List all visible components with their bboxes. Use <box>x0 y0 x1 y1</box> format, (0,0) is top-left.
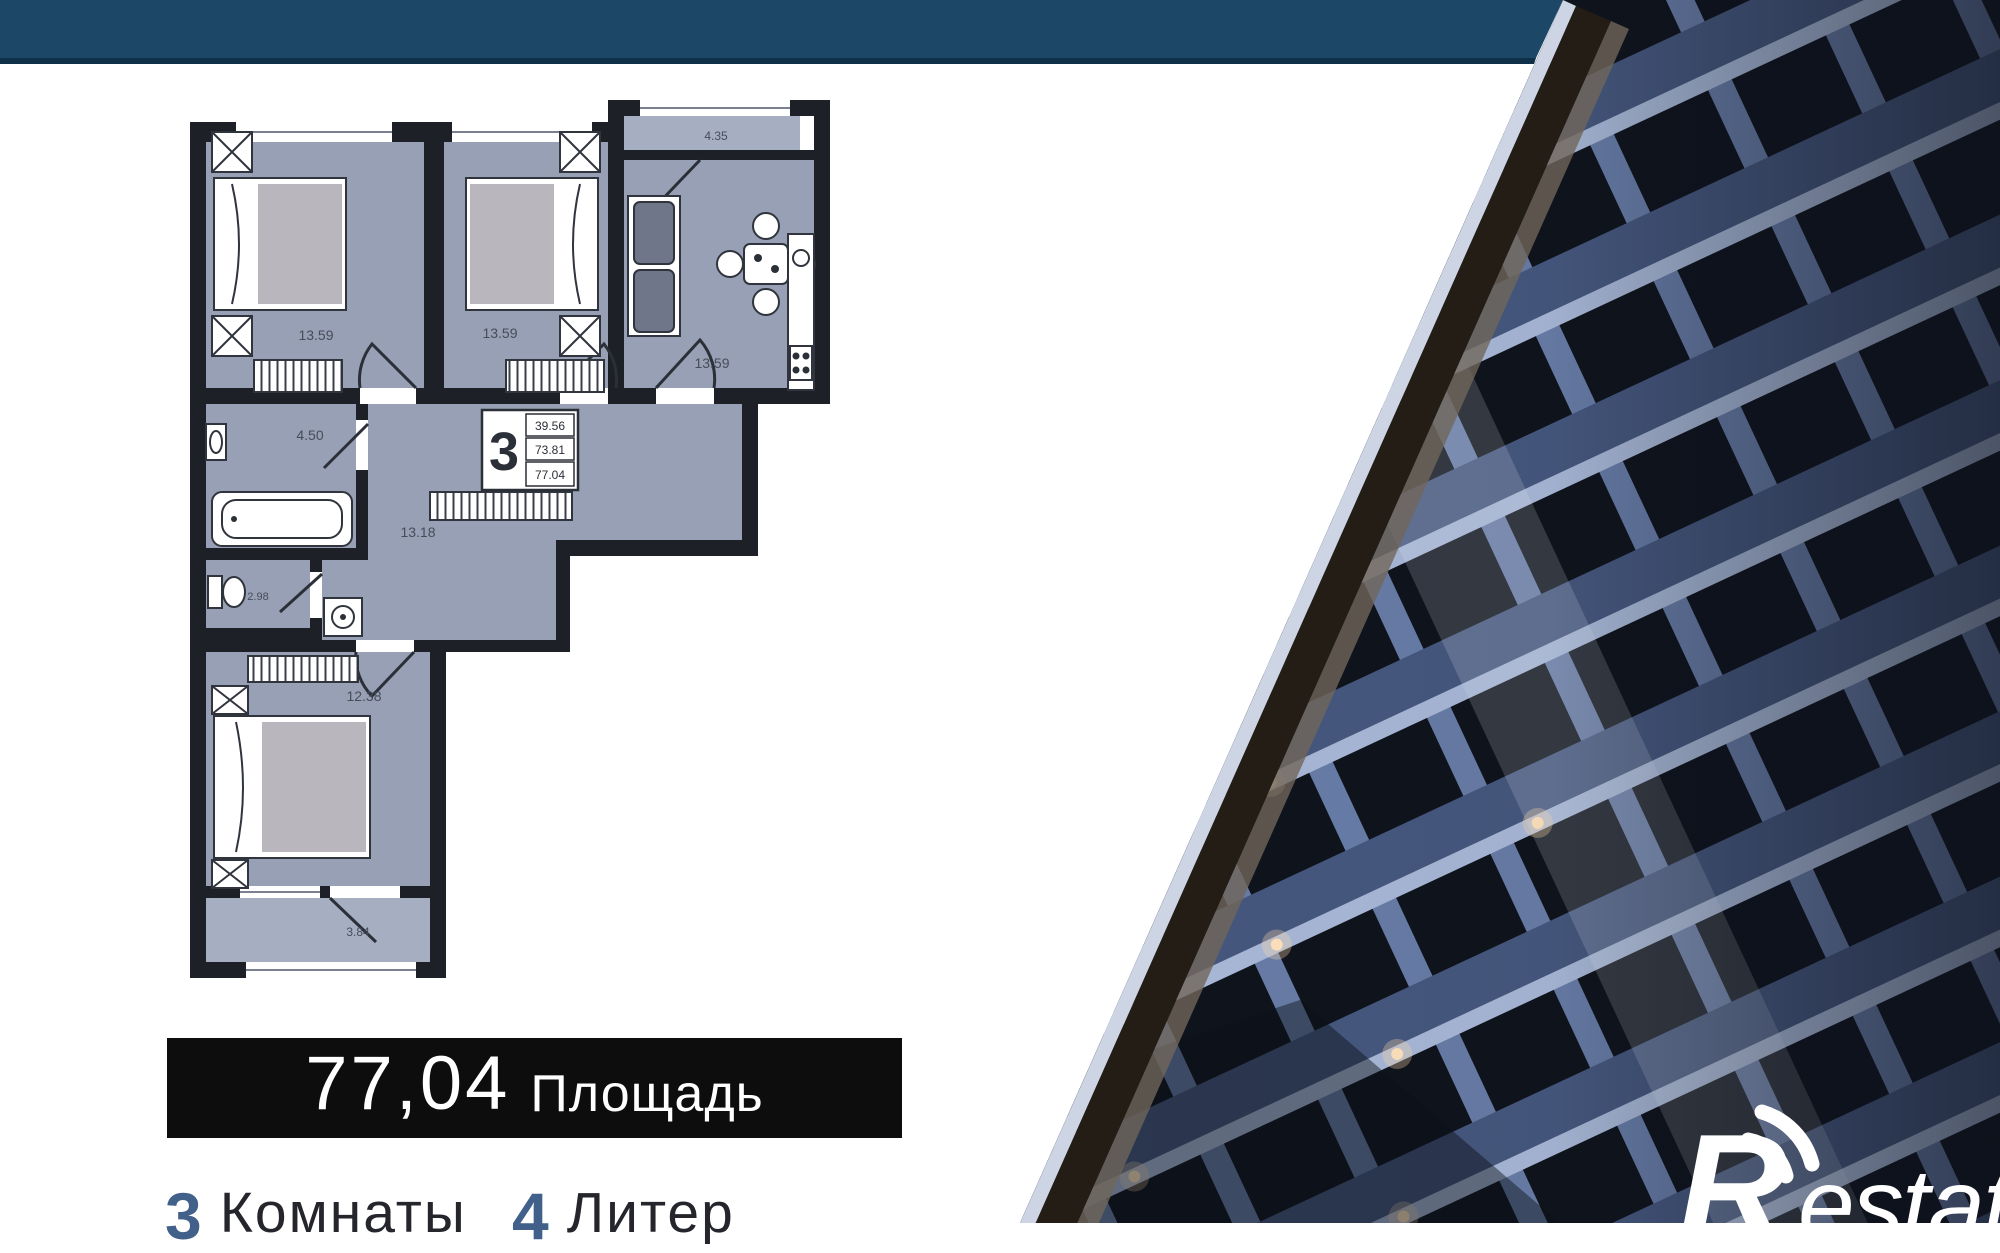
window <box>640 100 790 116</box>
header-bar <box>0 0 1563 64</box>
plate-area-wo-balcony: 73.81 <box>535 443 565 457</box>
room-area-label: 4.50 <box>296 427 323 443</box>
area-value: 77,04 <box>305 1046 510 1122</box>
watermark-initial: R <box>1678 1103 1788 1223</box>
bed-icon <box>466 178 598 310</box>
room-area-label: 13.59 <box>694 355 729 371</box>
floor-plan: 3 39.56 73.81 77.04 13.59 13.59 13.59 4.… <box>190 100 830 978</box>
room-area-label: 13.59 <box>482 325 517 341</box>
nightstand-icon <box>212 860 248 888</box>
plate-living-area: 39.56 <box>535 419 565 433</box>
room-area-label: 12.38 <box>346 688 381 704</box>
plate-rooms-count: 3 <box>489 422 519 482</box>
room-area-label: 13.18 <box>400 524 435 540</box>
nightstand-icon <box>212 316 252 356</box>
wardrobe-icon <box>248 656 358 682</box>
room-area-label: 13.59 <box>298 327 333 343</box>
sofa-icon <box>628 196 680 336</box>
sink-icon <box>206 424 226 460</box>
rooms-label: Комнаты <box>220 1183 467 1245</box>
rooms-count: 3 <box>165 1183 202 1249</box>
nightstand-icon <box>212 132 252 172</box>
window <box>236 122 392 142</box>
liter-label: Литер <box>567 1183 735 1245</box>
bed-icon <box>214 178 346 310</box>
nightstand-icon <box>212 686 248 714</box>
nightstand-icon <box>560 132 600 172</box>
liter-summary: 4 Литер <box>512 1183 735 1249</box>
kitchen-counter-icon <box>788 234 814 390</box>
wardrobe-icon <box>430 492 572 520</box>
nightstand-icon <box>560 316 600 356</box>
room-area-label: 4.35 <box>704 129 728 143</box>
area-banner: 77,04 Площадь <box>167 1038 902 1138</box>
watermark-rest: estate <box>1798 1148 2000 1223</box>
rooms-summary: 3 Комнаты <box>165 1183 467 1249</box>
window <box>246 962 416 978</box>
room-area-label: 2.98 <box>247 591 268 603</box>
area-label: Площадь <box>530 1067 763 1122</box>
bathtub-icon <box>212 492 352 546</box>
plate-total-area: 77.04 <box>535 468 565 482</box>
window <box>240 886 320 898</box>
liter-number: 4 <box>512 1183 549 1249</box>
wardrobe-icon <box>506 360 604 392</box>
room-area-label: 3.84 <box>346 925 370 939</box>
bed-icon <box>214 716 370 858</box>
info-plate: 3 39.56 73.81 77.04 <box>482 410 578 490</box>
toilet-icon <box>208 576 245 608</box>
listing-page: { "header": { "bg": "#1d4767", "border":… <box>0 0 2000 1223</box>
wardrobe-icon <box>254 360 342 392</box>
washing-machine-icon <box>324 598 362 636</box>
header-border <box>0 58 1536 64</box>
